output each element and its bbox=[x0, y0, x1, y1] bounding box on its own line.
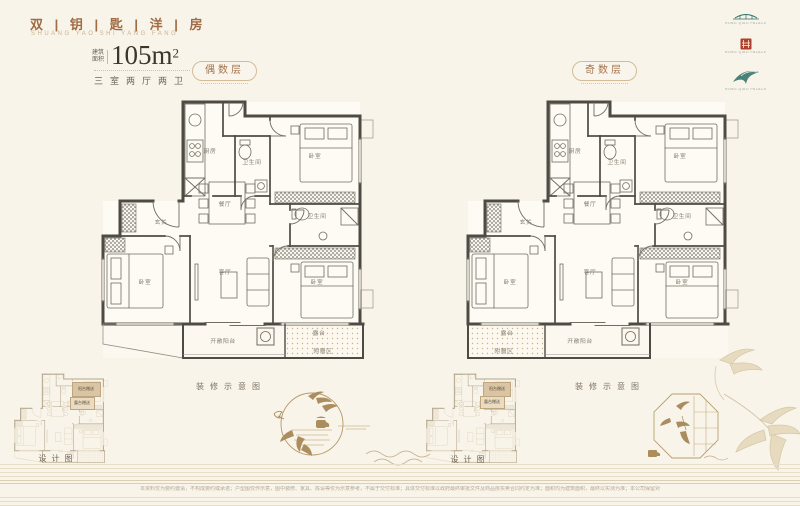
footer-stripes-bottom bbox=[0, 497, 800, 506]
room-label: 卧室 bbox=[309, 152, 322, 160]
area-value: 105m bbox=[111, 40, 173, 70]
footer-rule-1 bbox=[0, 480, 800, 481]
footer-rule-2 bbox=[0, 483, 800, 484]
area-prefix-top: 建筑 bbox=[92, 50, 104, 57]
room-label: 露台 bbox=[501, 329, 514, 337]
brand-seal-bridge: HONG QIAO PALACE bbox=[708, 10, 784, 28]
floorplan-svg: 开敞阳台露台附赠区厨房卫生间卧室餐厅玄关卫生间卧室客厅卧室 bbox=[460, 96, 750, 368]
badge-odd-floor: 奇数层 bbox=[572, 61, 637, 81]
room-label: 客厅 bbox=[219, 268, 232, 276]
room-fills bbox=[468, 102, 728, 358]
floorplan-svg: 开敞阳台露台附赠区厨房卫生间卧室餐厅玄关卫生间卧室客厅卧室 bbox=[95, 96, 385, 368]
badge-even-floor: 偶数层 bbox=[192, 61, 257, 81]
room-label: 客厅 bbox=[584, 268, 597, 276]
deco-illustration-label-left: 装修示意图 bbox=[186, 381, 276, 392]
unit-spec: 三室两厅两卫 bbox=[94, 70, 190, 87]
footer-stripes-top bbox=[0, 464, 800, 478]
red-seal-icon bbox=[740, 38, 752, 50]
room-label: 卧室 bbox=[676, 278, 689, 286]
room-label: 卧室 bbox=[139, 278, 152, 286]
callout-terrace-gift-right: 露台赠送 bbox=[480, 396, 505, 409]
room-label: 卫生间 bbox=[672, 212, 691, 220]
room-label: 开敞阳台 bbox=[567, 337, 593, 345]
room-label: 卫生间 bbox=[242, 158, 261, 166]
callout-balcony-gift-right: 阳台赠送 bbox=[483, 382, 511, 397]
red-seal-caption: HONG QIAO PALACE bbox=[725, 51, 767, 54]
deco-illustration-label-right: 装修示意图 bbox=[565, 381, 655, 392]
room-label: 附赠区 bbox=[494, 347, 513, 355]
phoenix-seal-caption: HONG QIAO PALACE bbox=[725, 88, 767, 91]
area-prefix: 建筑 面积 bbox=[92, 50, 108, 64]
room-label: 厨房 bbox=[569, 147, 582, 155]
brand-seal-phoenix: HONG QIAO PALACE bbox=[708, 67, 784, 94]
floorplan-brochure-page: 双 | 钥 | 匙 | 洋 | 房 SHUANG YAO SHI YANG FA… bbox=[0, 0, 800, 506]
room-label: 附赠区 bbox=[313, 347, 332, 355]
bridge-icon bbox=[733, 10, 759, 21]
page-subtitle: SHUANG YAO SHI YANG FANG bbox=[31, 31, 178, 37]
brand-seal-red: HONG QIAO PALACE bbox=[708, 38, 784, 57]
floorplan-even-floor: 开敞阳台露台附赠区厨房卫生间卧室餐厅玄关卫生间卧室客厅卧室 bbox=[95, 96, 385, 368]
room-label: 卫生间 bbox=[607, 158, 626, 166]
room-label: 卧室 bbox=[504, 278, 517, 286]
area-prefix-bottom: 面积 bbox=[92, 57, 104, 64]
callout-balcony-gift-left: 阳台赠送 bbox=[72, 382, 101, 397]
room-label: 露台 bbox=[313, 329, 326, 337]
design-drawing-label-left: 设计图 bbox=[28, 453, 88, 464]
bridge-seal-caption: HONG QIAO PALACE bbox=[725, 22, 767, 25]
brand-seals: HONG QIAO PALACE HONG QIAO PALACE HONG Q… bbox=[714, 10, 778, 104]
footer-disclaimer: 本资料仅为要约邀请，不构成要约或承诺；户型图仅作示意，图中装修、家具、陈设等仅为… bbox=[140, 486, 660, 492]
room-label: 卧室 bbox=[674, 152, 687, 160]
room-label: 餐厅 bbox=[219, 200, 232, 208]
callout-terrace-gift-left: 露台赠送 bbox=[70, 397, 95, 410]
room-label: 玄关 bbox=[155, 218, 168, 226]
room-fills bbox=[103, 102, 363, 358]
room-label: 餐厅 bbox=[584, 200, 597, 208]
room-label: 卧室 bbox=[311, 278, 324, 286]
floorplan-odd-floor: 开敞阳台露台附赠区厨房卫生间卧室餐厅玄关卫生间卧室客厅卧室 bbox=[460, 96, 750, 368]
octagon-window-decoration bbox=[646, 388, 742, 468]
room-label: 卫生间 bbox=[307, 212, 326, 220]
phoenix-icon bbox=[731, 67, 761, 87]
room-label: 玄关 bbox=[520, 218, 533, 226]
area-superscript: 2 bbox=[173, 46, 180, 61]
room-label: 厨房 bbox=[204, 147, 217, 155]
room-label: 开敞阳台 bbox=[210, 337, 236, 345]
area-block: 建筑 面积 105m2 bbox=[92, 42, 179, 69]
